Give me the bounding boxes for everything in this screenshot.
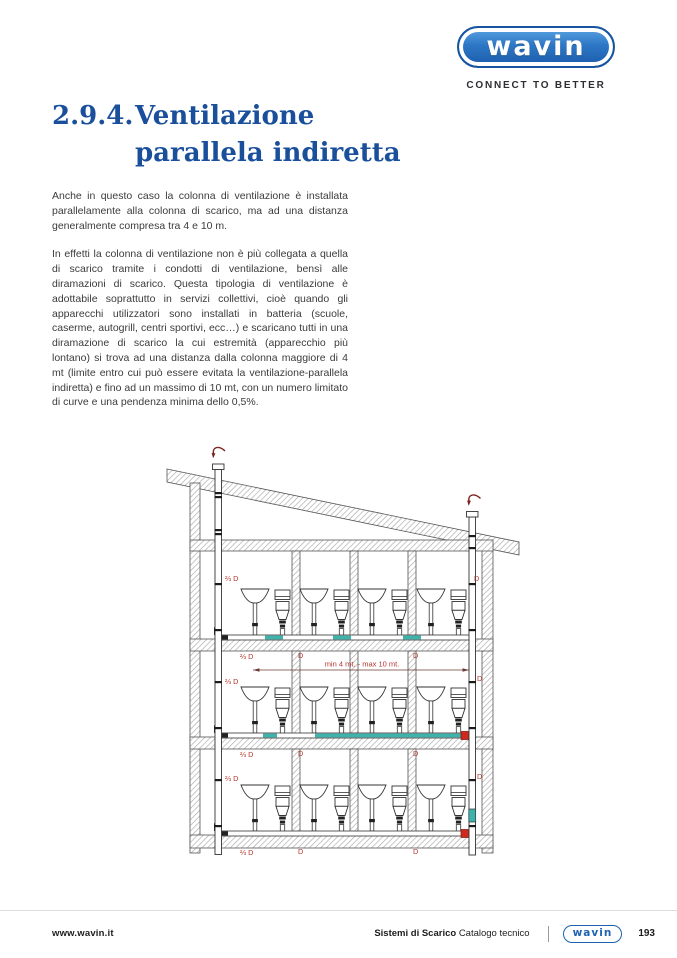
- floor-slab-1: [190, 639, 493, 651]
- floor-slab-2: [190, 737, 493, 749]
- ground-slab: [190, 835, 493, 848]
- label-d-9: D: [413, 847, 418, 856]
- ceiling-slab: [190, 540, 493, 551]
- label-d-2: D: [298, 651, 303, 660]
- section-title: 2.9.4. Ventilazione parallela indiretta: [52, 98, 401, 172]
- label-d-6: D: [413, 749, 418, 758]
- brand-tagline: CONNECT TO BETTER: [457, 80, 615, 91]
- footer-wavin-logo: wavin: [563, 925, 623, 943]
- building-section-diagram: min 4 mt. - max 10 mt. ⅔ D D ⅔ D D D ⅔ D…: [165, 443, 525, 873]
- teal-pipe-segment: [469, 809, 476, 822]
- document-series: Sistemi di Scarico: [374, 928, 456, 939]
- label-d-7: D: [477, 772, 482, 781]
- label-vent-5: ⅔ D: [225, 774, 238, 783]
- label-vent-6: ⅔ D: [240, 848, 253, 857]
- dimension-line: min 4 mt. - max 10 mt.: [253, 660, 469, 672]
- label-d-3: D: [413, 651, 418, 660]
- wavin-logo-text: wavin: [486, 33, 585, 60]
- red-fitting-bottom: [461, 830, 470, 838]
- website-link[interactable]: www.wavin.it: [52, 928, 114, 939]
- label-d-1: D: [474, 574, 479, 583]
- label-d-8: D: [298, 847, 303, 856]
- air-intake-arrow-left: [213, 447, 225, 454]
- section-title-line1: Ventilazione: [135, 98, 401, 135]
- label-vent-1: ⅔ D: [225, 574, 238, 583]
- vent-cap-left: [213, 464, 225, 470]
- page-number: 193: [638, 928, 655, 939]
- vent-cap-right: [467, 512, 479, 518]
- paragraph-2: In effetti la colonna di ventilazione no…: [52, 247, 348, 410]
- label-vent-4: ⅔ D: [240, 750, 253, 759]
- wavin-logo: wavin: [457, 26, 615, 68]
- label-vent-3: ⅔ D: [225, 677, 238, 686]
- brand-block: wavin CONNECT TO BETTER: [457, 26, 615, 91]
- section-title-line2: parallela indiretta: [135, 135, 401, 172]
- document-title: Sistemi di Scarico Catalogo tecnico: [374, 928, 529, 939]
- red-fitting-mid: [461, 732, 470, 740]
- footer-divider: [548, 926, 549, 942]
- page-footer: www.wavin.it Sistemi di Scarico Catalogo…: [0, 910, 677, 943]
- left-wall: [190, 483, 200, 853]
- body-copy: Anche in questo caso la colonna di venti…: [52, 189, 348, 424]
- label-d-5: D: [298, 749, 303, 758]
- air-intake-arrow-right: [469, 495, 481, 502]
- right-wall: [482, 543, 493, 853]
- dimension-label: min 4 mt. - max 10 mt.: [325, 660, 400, 669]
- label-d-4: D: [477, 674, 482, 683]
- section-number: 2.9.4.: [52, 98, 135, 172]
- document-name: Catalogo tecnico: [459, 928, 530, 939]
- paragraph-1: Anche in questo caso la colonna di venti…: [52, 189, 348, 233]
- label-vent-2: ⅔ D: [240, 652, 253, 661]
